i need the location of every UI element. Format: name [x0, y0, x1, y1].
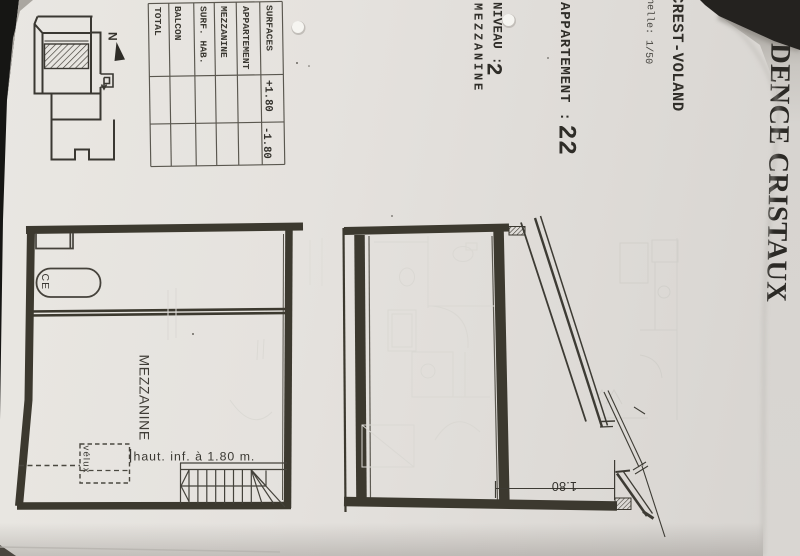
- svg-text:TOTAL: TOTAL: [152, 7, 163, 36]
- svg-text:CE: CE: [39, 274, 51, 291]
- svg-text:SURF. HAB.: SURF. HAB.: [198, 6, 209, 64]
- svg-text:NIVEAU :: NIVEAU :: [490, 2, 504, 65]
- svg-text:N: N: [106, 32, 120, 41]
- svg-text:SURFACES: SURFACES: [264, 5, 275, 51]
- svg-text:MEZZANINE: MEZZANINE: [218, 6, 229, 58]
- svg-text:22: 22: [552, 125, 581, 156]
- svg-text:-1.80: -1.80: [260, 127, 272, 159]
- svg-text:+1.80: +1.80: [262, 80, 274, 112]
- svg-text:Echelle: 1/50: Echelle: 1/50: [642, 0, 657, 64]
- svg-text:1.80: 1.80: [551, 479, 577, 493]
- svg-text:APPARTEMENT :: APPARTEMENT :: [556, 2, 572, 122]
- svg-text:vélux: vélux: [81, 446, 92, 474]
- svg-text:MEZZANINE: MEZZANINE: [137, 355, 153, 441]
- svg-text:BALCON: BALCON: [172, 6, 183, 41]
- svg-text:MEZZANINE: MEZZANINE: [471, 3, 485, 93]
- svg-text:CREST-VOLAND: CREST-VOLAND: [668, 0, 686, 112]
- svg-text:APPARTEMENT: APPARTEMENT: [240, 6, 251, 70]
- svg-text:haut. inf. à 1.80 m.: haut. inf. à 1.80 m.: [134, 450, 256, 464]
